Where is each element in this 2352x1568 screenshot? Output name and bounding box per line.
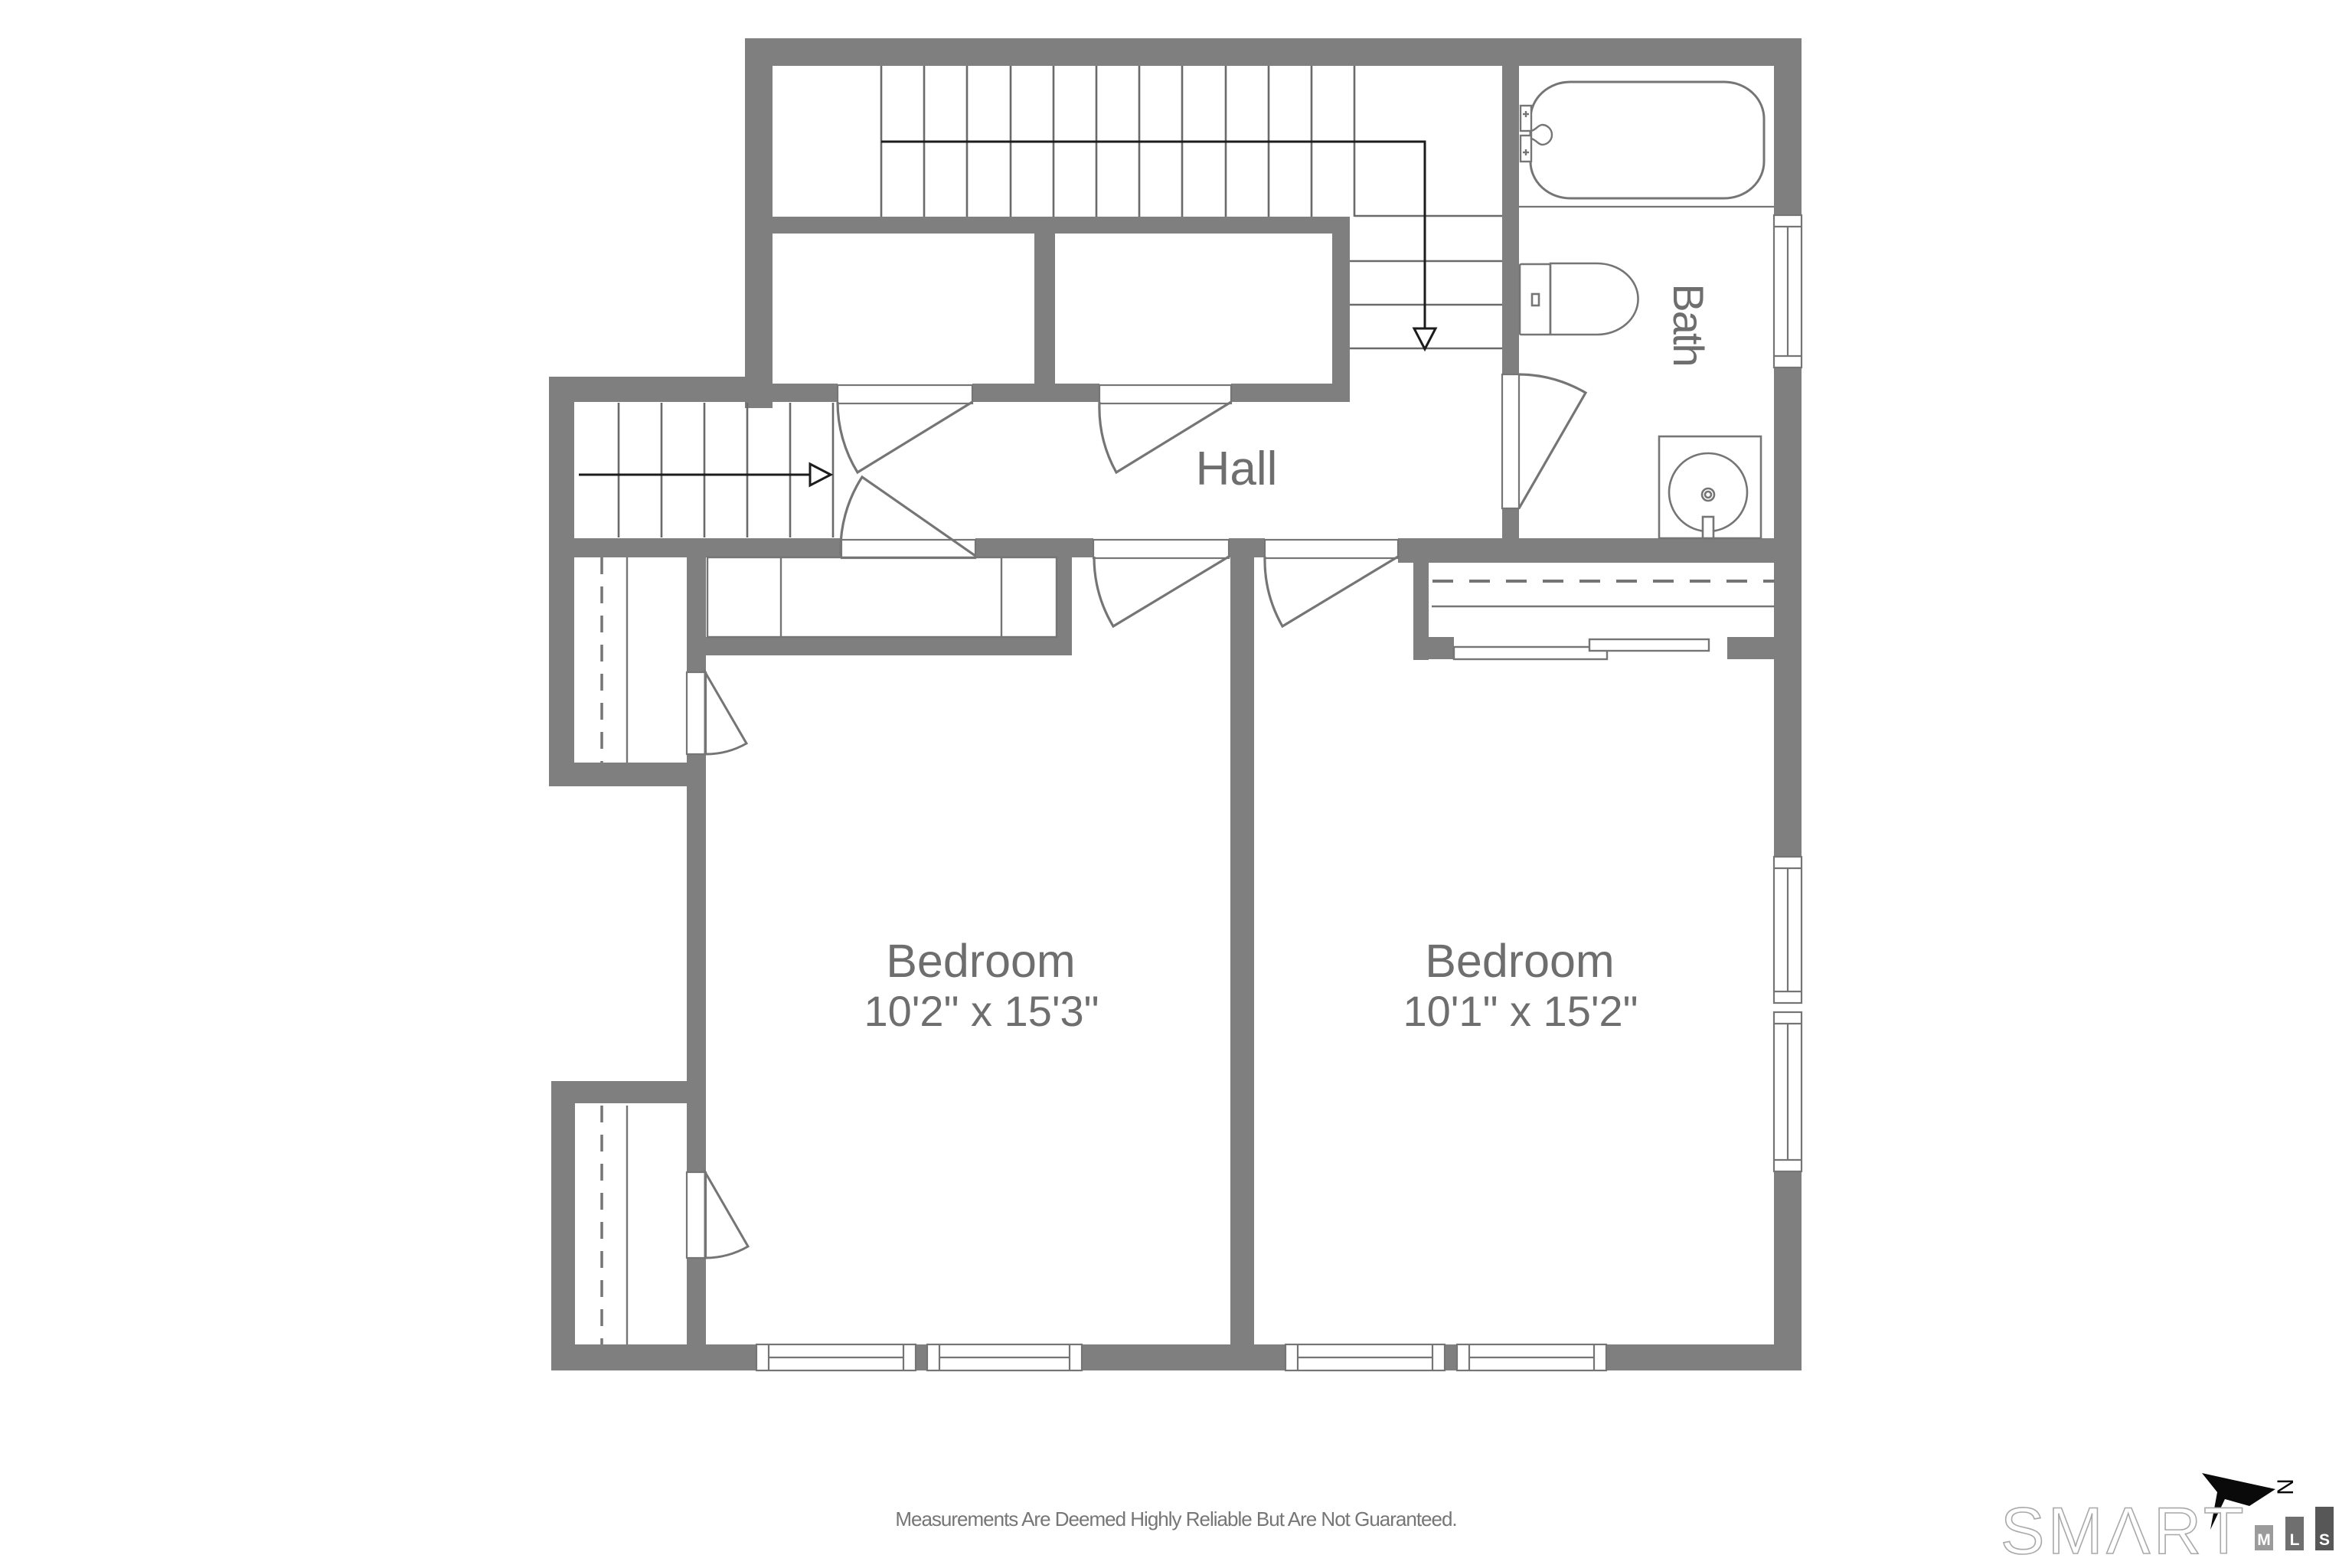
svg-text:Bedroom: Bedroom <box>886 935 1076 987</box>
svg-text:Measurements Are Deemed Highly: Measurements Are Deemed Highly Reliable … <box>895 1508 1456 1530</box>
svg-text:10'2" x 15'3": 10'2" x 15'3" <box>864 987 1099 1035</box>
svg-text:S: S <box>2319 1531 2330 1549</box>
svg-text:Bath: Bath <box>1664 283 1713 365</box>
svg-text:Hall: Hall <box>1196 443 1278 495</box>
svg-text:10'1" x 15'2": 10'1" x 15'2" <box>1403 987 1638 1035</box>
svg-text:SMΛRT: SMΛRT <box>2001 1494 2247 1568</box>
svg-text:L: L <box>2290 1531 2300 1549</box>
svg-text:Bedroom: Bedroom <box>1425 935 1615 987</box>
svg-text:N: N <box>2272 1478 2298 1495</box>
svg-text:M: M <box>2257 1531 2271 1549</box>
